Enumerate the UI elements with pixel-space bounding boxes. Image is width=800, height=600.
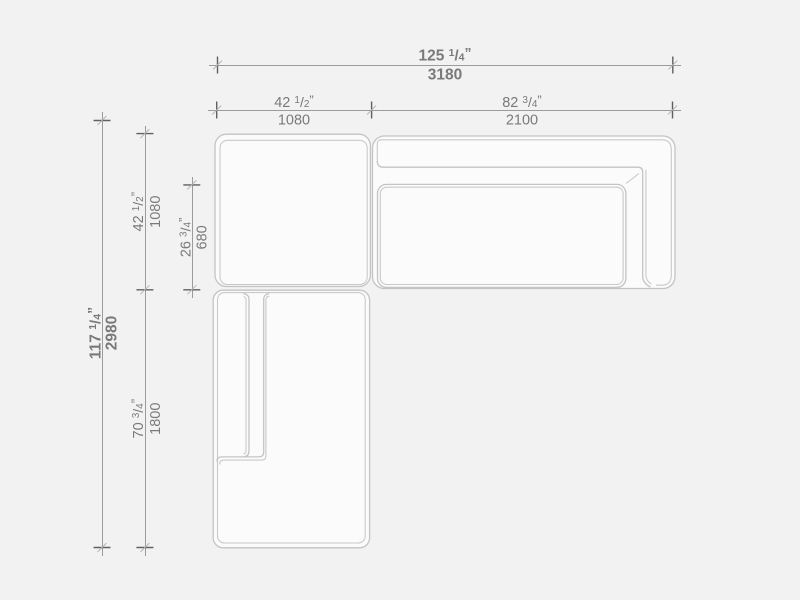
svg-text:125 1/4”: 125 1/4” [418,45,471,65]
svg-text:1080: 1080 [148,196,164,228]
svg-text:2100: 2100 [506,113,538,129]
svg-text:117 1/4”: 117 1/4” [85,307,105,359]
svg-text:680: 680 [195,225,211,249]
svg-text:2980: 2980 [104,316,121,350]
svg-text:1080: 1080 [278,113,310,129]
svg-text:1800: 1800 [148,403,164,435]
svg-text:3180: 3180 [428,67,462,84]
